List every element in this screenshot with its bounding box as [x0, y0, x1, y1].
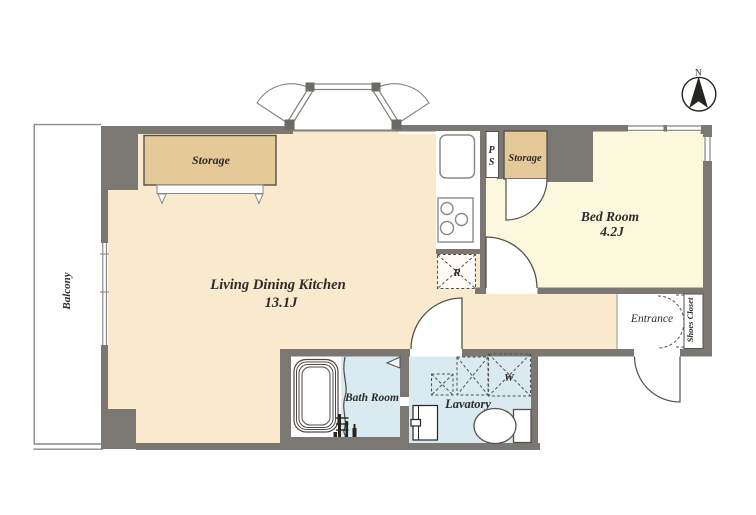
svg-text:W: W [504, 372, 515, 384]
svg-text:R: R [452, 267, 460, 279]
svg-text:Storage: Storage [508, 153, 542, 164]
svg-text:Bath Room: Bath Room [344, 392, 399, 404]
svg-text:Balcony: Balcony [61, 272, 73, 310]
svg-text:N: N [695, 69, 702, 79]
svg-text:Entrance: Entrance [630, 313, 673, 325]
svg-text:Lavatory: Lavatory [444, 397, 491, 411]
svg-text:4.2J: 4.2J [599, 224, 625, 239]
svg-text:Storage: Storage [192, 153, 231, 167]
svg-text:Bed Room: Bed Room [580, 209, 639, 224]
svg-text:Living Dining Kitchen: Living Dining Kitchen [209, 277, 345, 293]
svg-text:13.1J: 13.1J [265, 295, 299, 311]
svg-text:Shoes Closet: Shoes Closet [685, 297, 695, 342]
svg-text:P: P [488, 145, 495, 156]
svg-text:S: S [489, 157, 495, 168]
